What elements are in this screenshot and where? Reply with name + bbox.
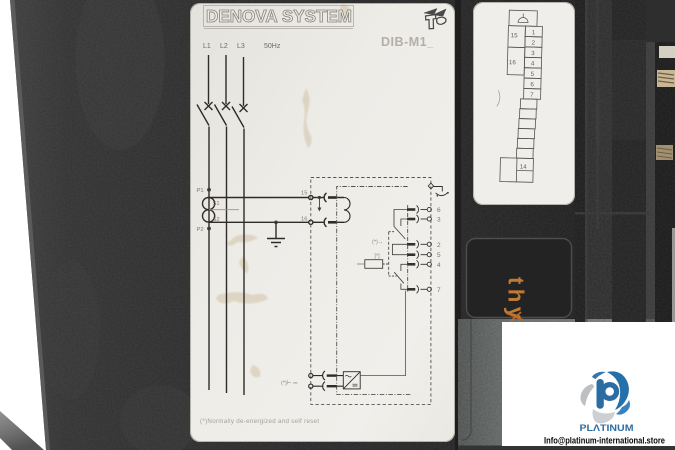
svg-text:(*)⊢ ⎓: (*)⊢ ⎓: [281, 380, 298, 387]
svg-text:L3: L3: [237, 43, 245, 50]
svg-text:DENOVA SYSTEM: DENOVA SYSTEM: [206, 6, 352, 26]
svg-text:L2: L2: [220, 43, 228, 50]
svg-text:L1: L1: [203, 43, 211, 50]
svg-text:DIB-M1_: DIB-M1_: [381, 35, 434, 49]
svg-text:P1: P1: [197, 188, 204, 194]
svg-text:6: 6: [437, 207, 441, 214]
svg-text:5: 5: [437, 252, 441, 259]
svg-text:(*)Normally de-energized and s: (*)Normally de-energized and self reset: [200, 418, 319, 425]
svg-text:PLΛTINUM: PLΛTINUM: [580, 423, 634, 433]
svg-text:[*]: [*]: [375, 254, 381, 260]
svg-text:7: 7: [437, 287, 441, 294]
svg-text:S1: S1: [213, 201, 220, 207]
svg-text:16: 16: [301, 217, 307, 223]
svg-text:Info@platinum-international.st: Info@platinum-international.store: [544, 436, 665, 446]
svg-text:16: 16: [509, 59, 517, 66]
svg-text:S2: S2: [213, 217, 220, 223]
svg-text:15: 15: [301, 191, 307, 197]
svg-text:3: 3: [437, 217, 441, 224]
svg-text:2: 2: [437, 242, 441, 249]
svg-text:50Hz: 50Hz: [264, 43, 281, 50]
svg-text:(*)→: (*)→: [372, 240, 383, 246]
svg-text:15: 15: [511, 32, 519, 39]
svg-text:14: 14: [520, 163, 528, 170]
svg-text:P2: P2: [197, 227, 204, 233]
svg-text:4: 4: [437, 262, 441, 269]
